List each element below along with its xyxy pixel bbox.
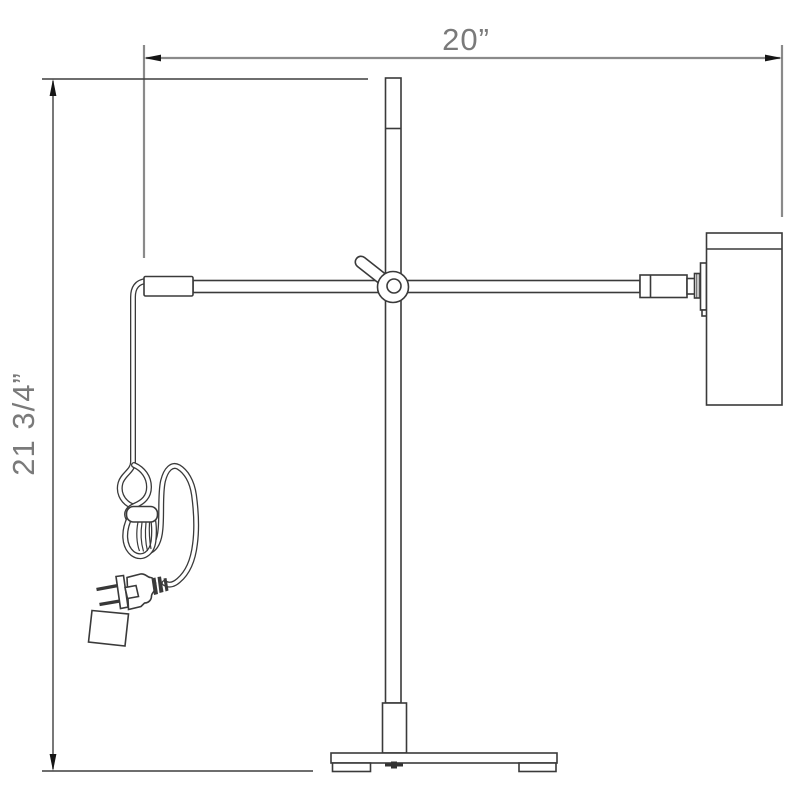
arm-elbow-sleeve [144,277,193,297]
width-dimension-label: 20” [442,22,490,57]
plug-prong [97,586,119,590]
base-foot-right [519,763,556,772]
plug-hole [125,586,139,599]
shade-mount-plate [701,263,707,310]
arrowhead-up [50,79,57,96]
lamp-shade [707,233,783,405]
base-plate [331,753,557,763]
base-foot-left [333,763,371,772]
base-screw-head [391,762,397,769]
lamp-base [331,753,557,772]
arrowhead-left [144,55,161,62]
height-dimension: 21 3/4” [6,79,368,771]
arm-end-sleeve [640,275,687,298]
pivot-hub [387,279,401,293]
arm-tube [193,281,640,293]
arrowhead-down [50,754,57,771]
pole-collar [383,703,407,753]
lamp-technical-drawing: 20” 21 3/4” [0,0,800,800]
shade-body [707,233,783,405]
power-plug [97,574,169,610]
power-cord [120,281,196,585]
lamp-pole [383,78,407,753]
drawing-svg: 20” 21 3/4” [0,0,800,800]
height-dimension-label: 21 3/4” [6,372,41,476]
plug-prong [100,601,121,605]
pole-tube [386,78,402,703]
cord-wrap-band [127,507,158,523]
arrowhead-right [765,55,782,62]
plug-cover-square [89,611,129,647]
width-dimension: 20” [144,22,782,258]
lamp-arm [144,263,707,316]
